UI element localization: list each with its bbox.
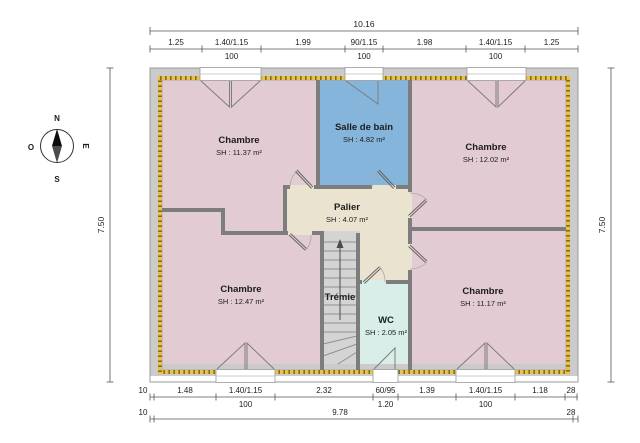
label-chambre-tl-name: Chambre [218, 135, 259, 146]
dim-bottom-seg-6: 1.40/1.15 [469, 386, 503, 395]
dim-top-sub-1: 100 [357, 52, 371, 61]
dim-bottom-seg-3: 2.32 [316, 386, 332, 395]
dim-bottom-seg-1: 1.48 [177, 386, 193, 395]
label-palier-area: SH : 4.07 m² [326, 215, 369, 224]
dim-bottom-sub-0: 100 [239, 400, 253, 409]
dim-top-seg-5: 1.40/1.15 [479, 38, 513, 47]
room-palier-corridor [356, 185, 412, 284]
dim-bottom-sub-2: 100 [479, 400, 493, 409]
dim-bottom-seg-0: 10 [139, 386, 148, 395]
dim-bottom-seg-8: 28 [567, 386, 576, 395]
label-chambre-br-name: Chambre [462, 286, 503, 297]
label-chambre-tr-area: SH : 12.02 m² [463, 155, 510, 164]
dim-top-seg-2: 1.99 [295, 38, 311, 47]
floorplan-canvas: Chambre SH : 11.37 m² Salle de bain SH :… [0, 0, 640, 443]
dim-bottom-total-1: 9.78 [332, 408, 348, 417]
dim-bottom-total-2: 28 [567, 408, 576, 417]
dim-bottom-seg-4: 60/95 [375, 386, 396, 395]
label-chambre-bl-area: SH : 12.47 m² [218, 297, 265, 306]
dim-top-seg-6: 1.25 [544, 38, 560, 47]
label-wc-name: WC [378, 315, 394, 326]
compass-south-label: S [54, 175, 60, 184]
label-chambre-br-area: SH : 11.17 m² [460, 299, 506, 308]
compass-north-label: N [54, 114, 60, 123]
dim-bottom-seg-7: 1.18 [532, 386, 548, 395]
dim-top-sub-0: 100 [225, 52, 239, 61]
label-sdb-name: Salle de bain [335, 122, 393, 133]
label-palier-name: Palier [334, 202, 360, 213]
dim-right-total: 7.50 [597, 216, 607, 233]
label-sdb-area: SH : 4.82 m² [343, 135, 386, 144]
compass-needle-north-icon [52, 129, 62, 146]
label-tremie-name: Trémie [325, 292, 356, 303]
dim-top-seg-0: 1.25 [168, 38, 184, 47]
dim-bottom-seg-5: 1.39 [419, 386, 435, 395]
dim-top-seg-1: 1.40/1.15 [215, 38, 249, 47]
dim-top-total: 10.16 [353, 19, 375, 29]
label-chambre-tl-area: SH : 11.37 m² [216, 148, 262, 157]
dim-left-total: 7.50 [96, 216, 106, 233]
dim-top-seg-4: 1.98 [417, 38, 433, 47]
label-chambre-bl-name: Chambre [220, 284, 261, 295]
dim-bottom-seg-2: 1.40/1.15 [229, 386, 263, 395]
label-wc-area: SH : 2.05 m² [365, 328, 408, 337]
compass-needle-south-icon [52, 146, 62, 163]
compass-east-label: E [81, 143, 90, 149]
dim-bottom-sub-1: 1.20 [378, 400, 394, 409]
dim-top-seg-3: 90/1.15 [351, 38, 378, 47]
compass-west-label: O [28, 143, 34, 152]
dim-bottom-total-0: 10 [139, 408, 148, 417]
label-chambre-tr-name: Chambre [465, 142, 506, 153]
dim-top-sub-2: 100 [489, 52, 503, 61]
compass: N S O E [28, 114, 90, 184]
floorplan-svg: Chambre SH : 11.37 m² Salle de bain SH :… [0, 0, 640, 443]
